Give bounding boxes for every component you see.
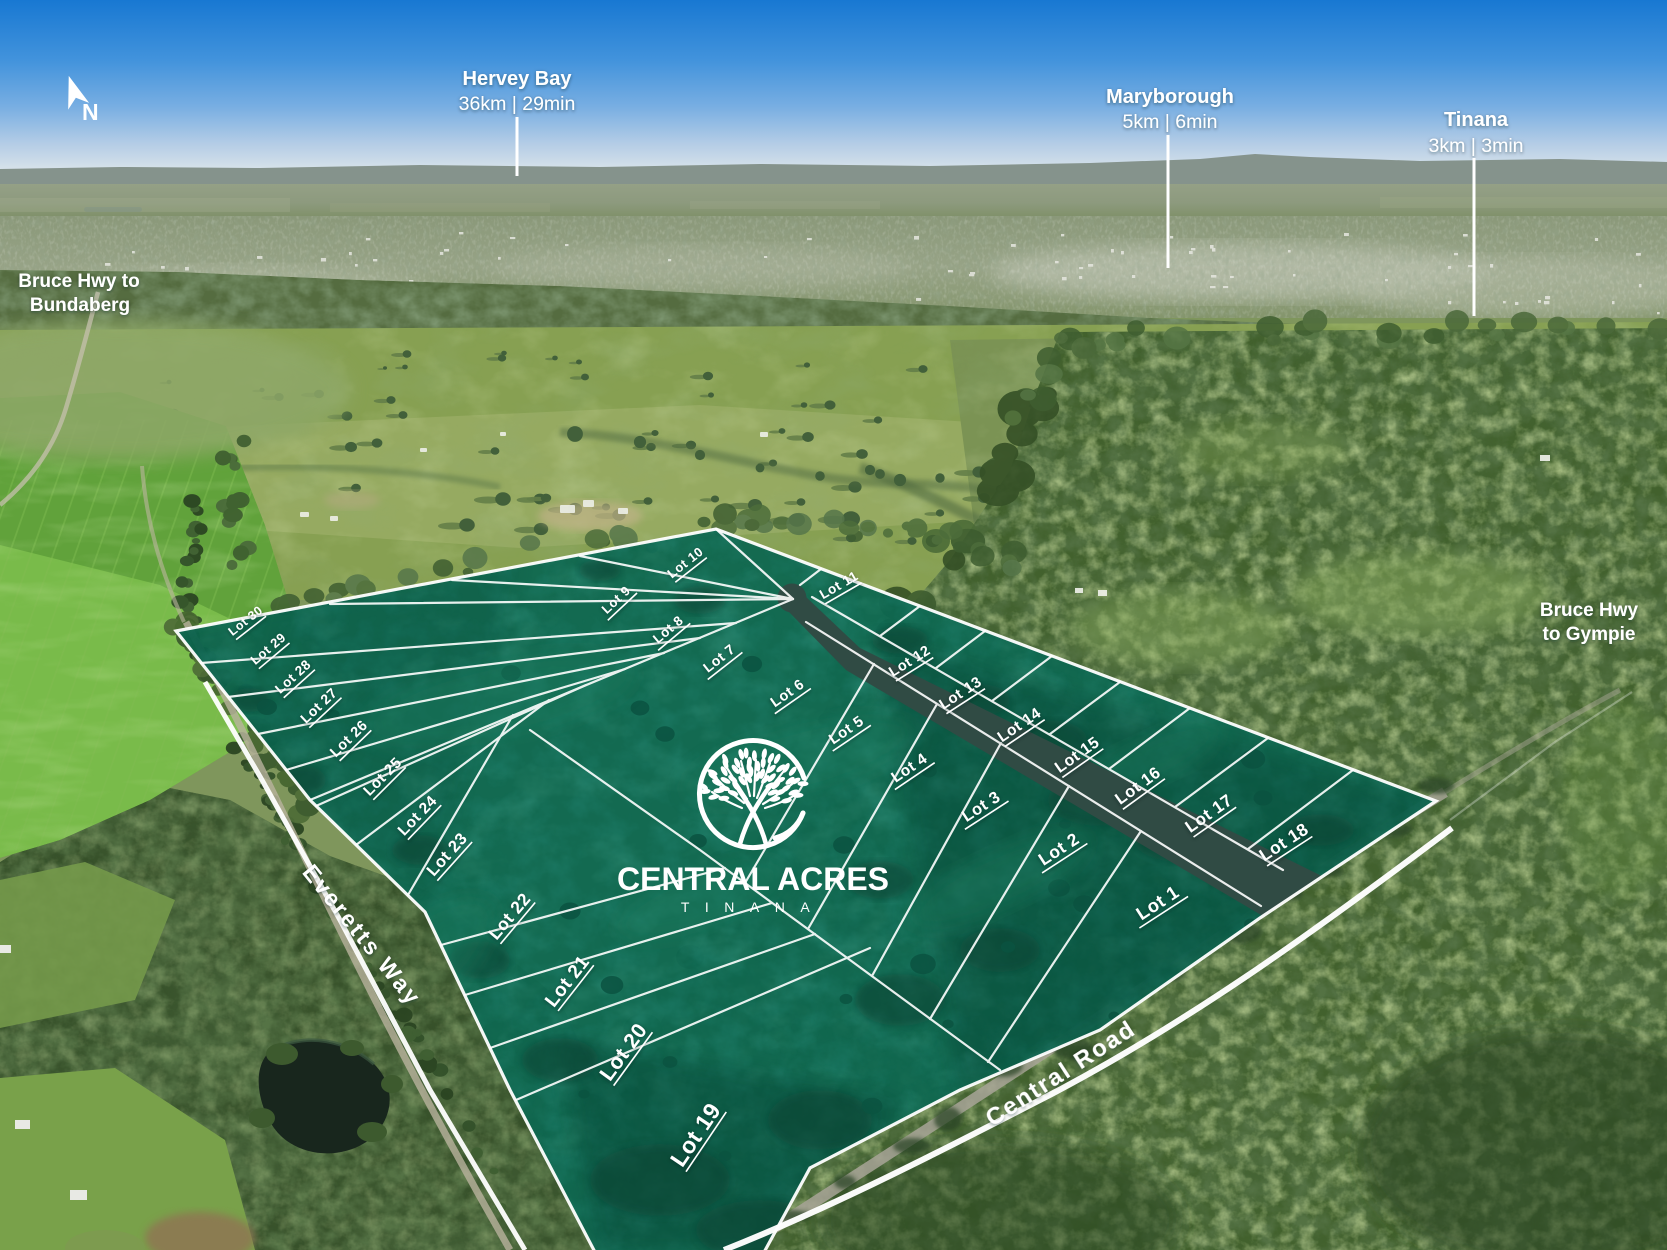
svg-text:Bruce Hwy to: Bruce Hwy to: [18, 271, 139, 292]
svg-text:TINANA: TINANA: [681, 899, 825, 915]
svg-text:Bruce Hwy: Bruce Hwy: [1540, 600, 1639, 621]
svg-text:5km | 6min: 5km | 6min: [1122, 111, 1217, 133]
svg-text:3km | 3min: 3km | 3min: [1428, 135, 1523, 157]
svg-text:N: N: [82, 99, 99, 125]
svg-text:CENTRAL ACRES: CENTRAL ACRES: [617, 861, 889, 897]
svg-text:Tinana: Tinana: [1444, 109, 1509, 131]
svg-text:Maryborough: Maryborough: [1106, 86, 1234, 108]
svg-text:Hervey Bay: Hervey Bay: [463, 68, 573, 90]
svg-text:Bundaberg: Bundaberg: [30, 295, 130, 316]
svg-text:36km | 29min: 36km | 29min: [459, 93, 576, 115]
svg-text:to Gympie: to Gympie: [1543, 624, 1636, 645]
